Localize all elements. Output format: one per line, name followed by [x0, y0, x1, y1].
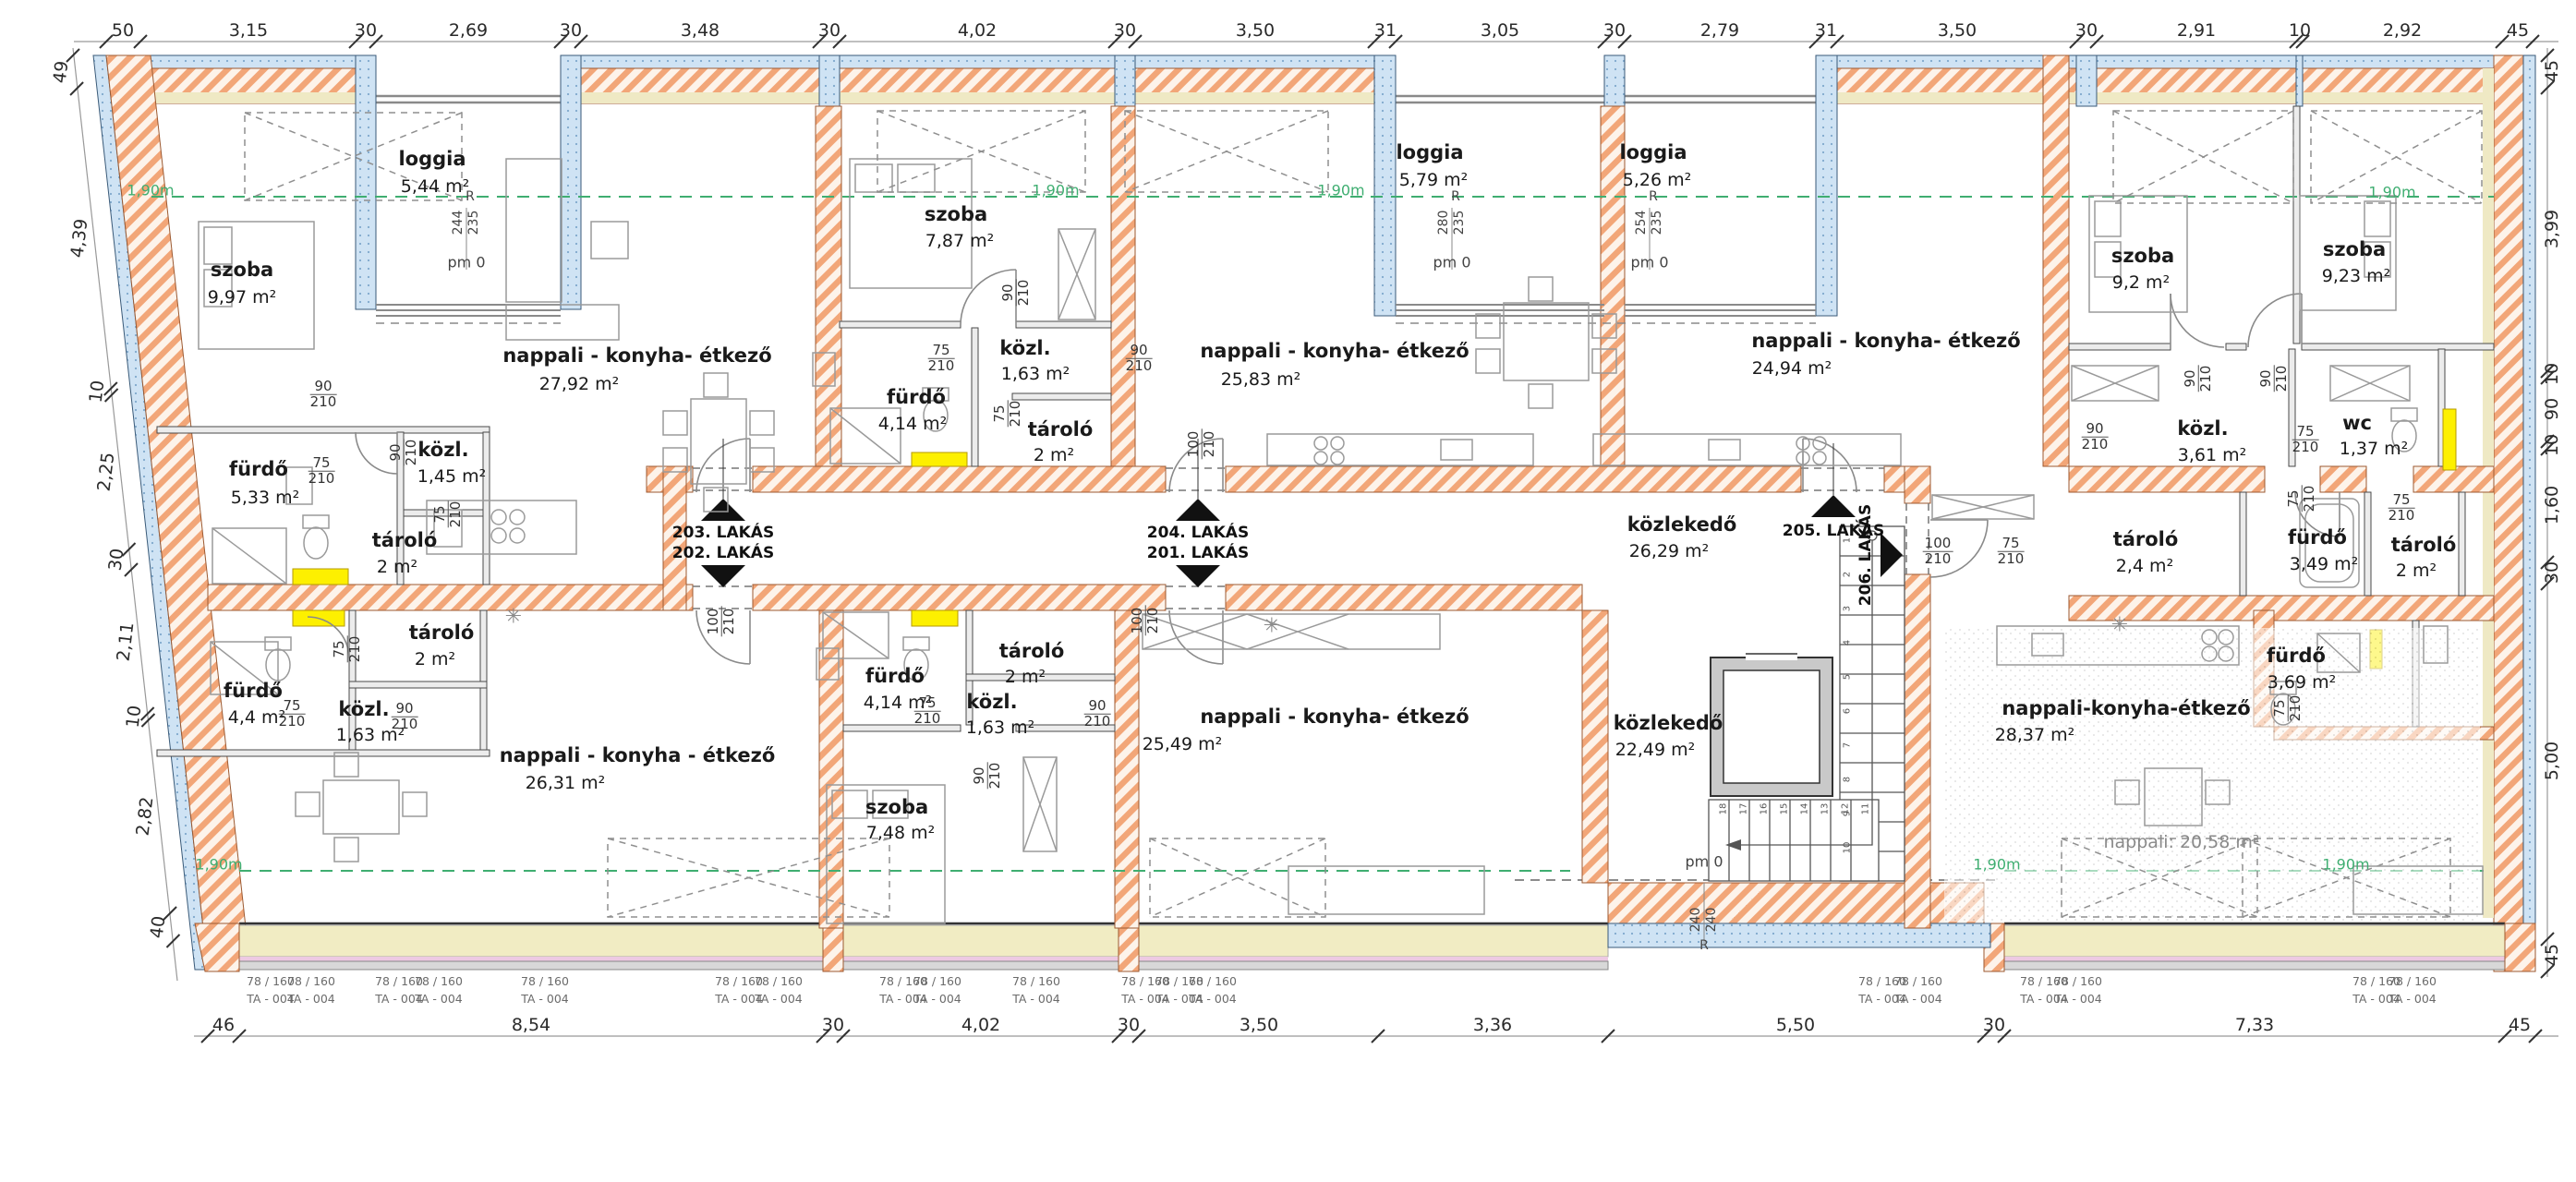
dim-label-left: 2,82 — [133, 796, 158, 838]
room-name-label: közl. — [999, 337, 1050, 359]
room-area-label: 3,49 m² — [2290, 554, 2358, 574]
roof-window-size-label: 78 / 160 — [415, 974, 463, 989]
room-name-label: loggia — [1619, 141, 1687, 163]
door-size-label: 90210 — [1001, 280, 1032, 307]
dim-label-left: 4,39 — [67, 218, 92, 259]
room-name-label: nappali - konyha- étkező — [502, 344, 771, 367]
floor-plan: szoba9,97 m²loggia5,44 m²nappali - konyh… — [0, 0, 2576, 1182]
stair-number: 4 — [1843, 640, 1853, 645]
room-area-label: 2,4 m² — [2116, 556, 2173, 576]
dim-label-top: 3,15 — [229, 20, 268, 41]
room-name-label: fürdő — [887, 386, 946, 408]
room-name-label: közl. — [338, 698, 389, 720]
door-size-label: 100210 — [707, 607, 737, 637]
stair-number: 2 — [1843, 572, 1853, 577]
dim-label-left: 10 — [86, 380, 109, 404]
room-area-label: 4,4 m² — [228, 707, 285, 728]
stair-dim-label: 240 — [1688, 908, 1703, 933]
room-area-label: 26,31 m² — [526, 773, 606, 793]
stair-number: 12 — [1841, 803, 1851, 815]
room-name-label: tároló — [2391, 534, 2457, 556]
dim-label-top: 30 — [2075, 20, 2098, 41]
dim-label-right: 90 — [2542, 398, 2562, 420]
room-area-label: 2 m² — [377, 557, 417, 577]
roof-window-code-label: TA - 004 — [2389, 992, 2437, 1007]
room-area-label: 26,29 m² — [1629, 541, 1710, 561]
door-size-label: 75210 — [993, 401, 1023, 428]
room-name-label: közlekedő — [1614, 712, 1723, 734]
dim-label-bottom: 5,50 — [1776, 1015, 1815, 1035]
roof-window-size-label: 78 / 160 — [1894, 974, 1942, 989]
room-area-label: 25,49 m² — [1143, 734, 1223, 754]
dim-label-top: 2,92 — [2383, 20, 2422, 41]
loggia-height-label: 235 — [466, 211, 481, 235]
stair-number: 1 — [1843, 537, 1853, 543]
apartment-marker-label: 203. LAKÁS — [672, 524, 774, 542]
dim-label-top: 2,79 — [1700, 20, 1739, 41]
green-height-label: 1,90m — [1317, 182, 1364, 199]
dim-label-right: 10 — [2542, 434, 2562, 456]
stair-number: 8 — [1843, 777, 1853, 782]
dim-label-left: 2,11 — [114, 621, 139, 663]
room-name-label: szoba — [865, 796, 928, 818]
dim-label-top: 30 — [355, 20, 377, 41]
room-name-label: nappali - konyha- étkező — [1200, 340, 1469, 362]
door-size-label: 75210 — [333, 636, 363, 663]
loggia-r-label: R — [1451, 189, 1460, 204]
room-name-label: fürdő — [224, 680, 283, 702]
room-name-label: nappali - konyha- étkező — [1200, 706, 1469, 728]
dim-label-top: 4,02 — [958, 20, 997, 41]
door-size-label: 75210 — [308, 456, 335, 487]
loggia-r-label: R — [1649, 189, 1658, 204]
dim-label-top: 3,05 — [1481, 20, 1519, 41]
stair-number: 7 — [1843, 742, 1853, 748]
room-name-label: loggia — [398, 148, 466, 170]
loggia-pm-label: pm 0 — [447, 254, 485, 271]
room-name-label: szoba — [211, 259, 273, 281]
room-name-label: fürdő — [865, 665, 925, 687]
apartment-marker-label: 201. LAKÁS — [1147, 544, 1249, 562]
room-area-label: 2 m² — [1034, 445, 1074, 465]
dim-label-top: 3,50 — [1236, 20, 1275, 41]
dim-label-top: 3,48 — [681, 20, 720, 41]
stair-number: 11 — [1861, 803, 1871, 815]
room-area-label: 5,26 m² — [1623, 170, 1691, 190]
dim-label-left: 30 — [105, 548, 128, 573]
dim-label-bottom: 4,02 — [961, 1015, 1000, 1035]
dim-label-bottom: 7,33 — [2235, 1015, 2274, 1035]
room-name-label: tároló — [999, 640, 1065, 662]
room-name-label: szoba — [925, 203, 987, 225]
dim-label-left: 40 — [147, 915, 170, 940]
room-name-label: nappali - konyha - étkező — [500, 744, 776, 766]
dim-label-left: 2,25 — [94, 452, 119, 493]
room-area-label: 1,63 m² — [1001, 364, 1070, 384]
roof-window-code-label: TA - 004 — [2054, 992, 2102, 1007]
door-size-label: 90210 — [1084, 699, 1111, 730]
door-size-label: 90210 — [973, 763, 1003, 790]
stair-number: 6 — [1843, 708, 1853, 714]
roof-window-code-label: TA - 004 — [1894, 992, 1942, 1007]
room-name-label: tároló — [1028, 418, 1094, 440]
stair-number: 13 — [1820, 803, 1831, 815]
room-name-label: közl. — [417, 439, 468, 461]
stair-number: 16 — [1760, 803, 1770, 815]
room-name-label: fürdő — [2288, 526, 2347, 549]
loggia-pm-label: pm 0 — [1433, 254, 1470, 271]
room-area-label: 1,45 m² — [417, 466, 486, 487]
stair-number: 17 — [1739, 803, 1749, 815]
loggia-width-label: 280 — [1436, 211, 1451, 235]
loggia-height-label: 235 — [1452, 211, 1467, 235]
roof-window-code-label: TA - 004 — [1189, 992, 1237, 1007]
dim-label-top: 30 — [818, 20, 841, 41]
dim-label-bottom: 46 — [212, 1015, 235, 1035]
roof-window-size-label: 78 / 160 — [2054, 974, 2102, 989]
room-name-label: közl. — [966, 691, 1017, 713]
loggia-height-label: 235 — [1650, 211, 1664, 235]
radiator-icon: ✳ — [1264, 615, 1280, 638]
stair-dim-label: 240 — [1704, 908, 1719, 933]
roof-window-code-label: TA - 004 — [415, 992, 463, 1007]
roof-window-size-label: 78 / 160 — [2389, 974, 2437, 989]
dim-label-top: 3,50 — [1938, 20, 1977, 41]
room-area-label: 7,87 m² — [925, 231, 994, 251]
apartment-marker-label: 202. LAKÁS — [672, 544, 774, 562]
living-subarea-label: nappali: 20,58 m² — [2103, 832, 2259, 852]
dim-label-bottom: 30 — [822, 1015, 844, 1035]
room-area-label: 5,33 m² — [231, 488, 299, 508]
room-name-label: tároló — [372, 529, 438, 551]
green-height-label: 1,90m — [127, 182, 174, 199]
door-size-label: 75210 — [433, 501, 464, 528]
roof-window-code-label: TA - 004 — [913, 992, 961, 1007]
room-area-label: 4,14 m² — [878, 414, 947, 434]
dim-label-top: 50 — [112, 20, 134, 41]
door-size-label: 90210 — [392, 702, 418, 732]
radiator-icon: ✳ — [2111, 614, 2128, 637]
door-size-label: 90210 — [310, 380, 337, 410]
door-size-label: 75210 — [2273, 695, 2304, 722]
room-name-label: loggia — [1396, 141, 1463, 163]
room-area-label: 9,2 m² — [2112, 272, 2170, 293]
dim-label-top: 30 — [560, 20, 582, 41]
room-area-label: 22,49 m² — [1615, 740, 1696, 760]
room-area-label: 1,63 m² — [966, 718, 1034, 738]
stair-number: 3 — [1843, 606, 1853, 611]
door-size-label: 75210 — [2287, 486, 2317, 513]
door-size-label: 75210 — [2292, 425, 2319, 455]
room-name-label: fürdő — [2267, 645, 2326, 667]
room-name-label: szoba — [2323, 238, 2386, 260]
room-name-label: közl. — [2177, 417, 2228, 440]
room-area-label: 27,92 m² — [539, 374, 620, 394]
room-area-label: 5,44 m² — [401, 176, 469, 197]
room-area-label: 3,61 m² — [2178, 445, 2246, 465]
loggia-pm-label: pm 0 — [1630, 254, 1668, 271]
dim-label-top: 2,91 — [2177, 20, 2216, 41]
room-area-label: 9,97 m² — [208, 287, 276, 308]
green-height-label: 1,90m — [1032, 182, 1079, 199]
plan-labels: szoba9,97 m²loggia5,44 m²nappali - konyh… — [0, 0, 2576, 1182]
dim-label-bottom: 30 — [1118, 1015, 1140, 1035]
door-size-label: 75210 — [928, 344, 955, 374]
stair-pm-label: pm 0 — [1685, 853, 1723, 871]
room-area-label: 24,94 m² — [1752, 358, 1832, 379]
room-name-label: fürdő — [229, 458, 288, 480]
room-area-label: 3,69 m² — [2268, 672, 2336, 693]
door-size-label: 100210 — [1187, 429, 1217, 460]
roof-window-size-label: 78 / 160 — [287, 974, 335, 989]
dim-label-right: 30 — [2542, 561, 2562, 584]
apartment-marker-label: 206. LAKÁS — [1856, 504, 1875, 606]
green-height-label: 1,90m — [2322, 856, 2369, 874]
door-size-label: 75210 — [1998, 537, 2025, 567]
door-size-label: 90210 — [1126, 344, 1153, 374]
room-area-label: 9,23 m² — [2322, 266, 2390, 286]
room-name-label: tároló — [409, 621, 475, 644]
stair-number: 15 — [1780, 803, 1790, 815]
room-area-label: 2 m² — [2396, 561, 2437, 581]
door-size-label: 90210 — [389, 440, 419, 466]
room-name-label: wc — [2342, 412, 2372, 434]
room-area-label: 7,48 m² — [866, 823, 935, 843]
green-height-label: 1,90m — [1973, 856, 2020, 874]
room-name-label: nappali-konyha-étkező — [2002, 697, 2250, 719]
loggia-width-label: 244 — [451, 211, 466, 235]
door-size-label: 100210 — [1923, 537, 1953, 567]
roof-window-size-label: 78 / 160 — [1012, 974, 1060, 989]
dim-label-right: 10 — [2542, 363, 2562, 385]
room-area-label: 25,83 m² — [1221, 369, 1301, 390]
dim-label-bottom: 8,54 — [512, 1015, 550, 1035]
dim-label-right: 1,60 — [2542, 486, 2562, 525]
stair-number: 14 — [1800, 803, 1810, 815]
radiator-icon: ✳ — [505, 606, 522, 629]
door-size-label: 90210 — [2259, 366, 2290, 392]
roof-window-code-label: TA - 004 — [287, 992, 335, 1007]
apartment-marker-label: 204. LAKÁS — [1147, 524, 1249, 542]
roof-window-code-label: TA - 004 — [755, 992, 803, 1007]
green-height-label: 1,90m — [195, 856, 242, 874]
roof-window-size-label: 78 / 160 — [913, 974, 961, 989]
stair-number: 5 — [1843, 674, 1853, 680]
room-name-label: szoba — [2111, 245, 2174, 267]
roof-window-size-label: 78 / 160 — [521, 974, 569, 989]
room-name-label: közlekedő — [1627, 513, 1737, 536]
dim-label-top: 2,69 — [449, 20, 488, 41]
dim-label-top: 30 — [1114, 20, 1136, 41]
room-name-label: nappali - konyha- étkező — [1751, 330, 2020, 352]
dim-label-left: 10 — [123, 705, 146, 730]
dim-label-right: 45 — [2542, 60, 2562, 82]
dim-label-bottom: 3,36 — [1473, 1015, 1512, 1035]
door-size-label: 90210 — [2183, 366, 2214, 392]
door-size-label: 100210 — [1131, 606, 1161, 636]
door-size-label: 75210 — [2389, 493, 2415, 524]
door-size-label: 75210 — [914, 696, 941, 727]
room-area-label: 1,37 m² — [2340, 439, 2408, 459]
loggia-width-label: 254 — [1634, 211, 1649, 235]
stair-r-label: R — [1699, 938, 1709, 953]
room-area-label: 2 m² — [415, 649, 455, 669]
door-size-label: 75210 — [279, 699, 306, 730]
loggia-r-label: R — [466, 189, 475, 204]
stair-number: 10 — [1843, 842, 1853, 854]
dim-label-top: 31 — [1374, 20, 1397, 41]
room-name-label: tároló — [2113, 528, 2179, 550]
green-height-label: 1,90m — [2368, 184, 2415, 201]
roof-window-code-label: TA - 004 — [1012, 992, 1060, 1007]
dim-label-left: 49 — [50, 60, 73, 85]
dim-label-bottom: 45 — [2509, 1015, 2531, 1035]
dim-label-top: 45 — [2507, 20, 2529, 41]
dim-label-bottom: 3,50 — [1240, 1015, 1278, 1035]
roof-window-code-label: TA - 004 — [521, 992, 569, 1007]
room-area-label: 28,37 m² — [1995, 725, 2075, 745]
dim-label-top: 10 — [2289, 20, 2311, 41]
dim-label-right: 5,00 — [2542, 742, 2562, 780]
stair-number: 18 — [1719, 803, 1729, 815]
room-area-label: 5,79 m² — [1399, 170, 1468, 190]
dim-label-top: 30 — [1603, 20, 1626, 41]
door-size-label: 90210 — [2082, 422, 2109, 452]
dim-label-top: 31 — [1815, 20, 1837, 41]
roof-window-size-label: 78 / 160 — [755, 974, 803, 989]
roof-window-size-label: 78 / 160 — [1189, 974, 1237, 989]
dim-label-bottom: 30 — [1983, 1015, 2005, 1035]
dim-label-right: 45 — [2542, 944, 2562, 966]
dim-label-right: 3,99 — [2542, 210, 2562, 248]
room-area-label: 2 m² — [1005, 667, 1046, 687]
